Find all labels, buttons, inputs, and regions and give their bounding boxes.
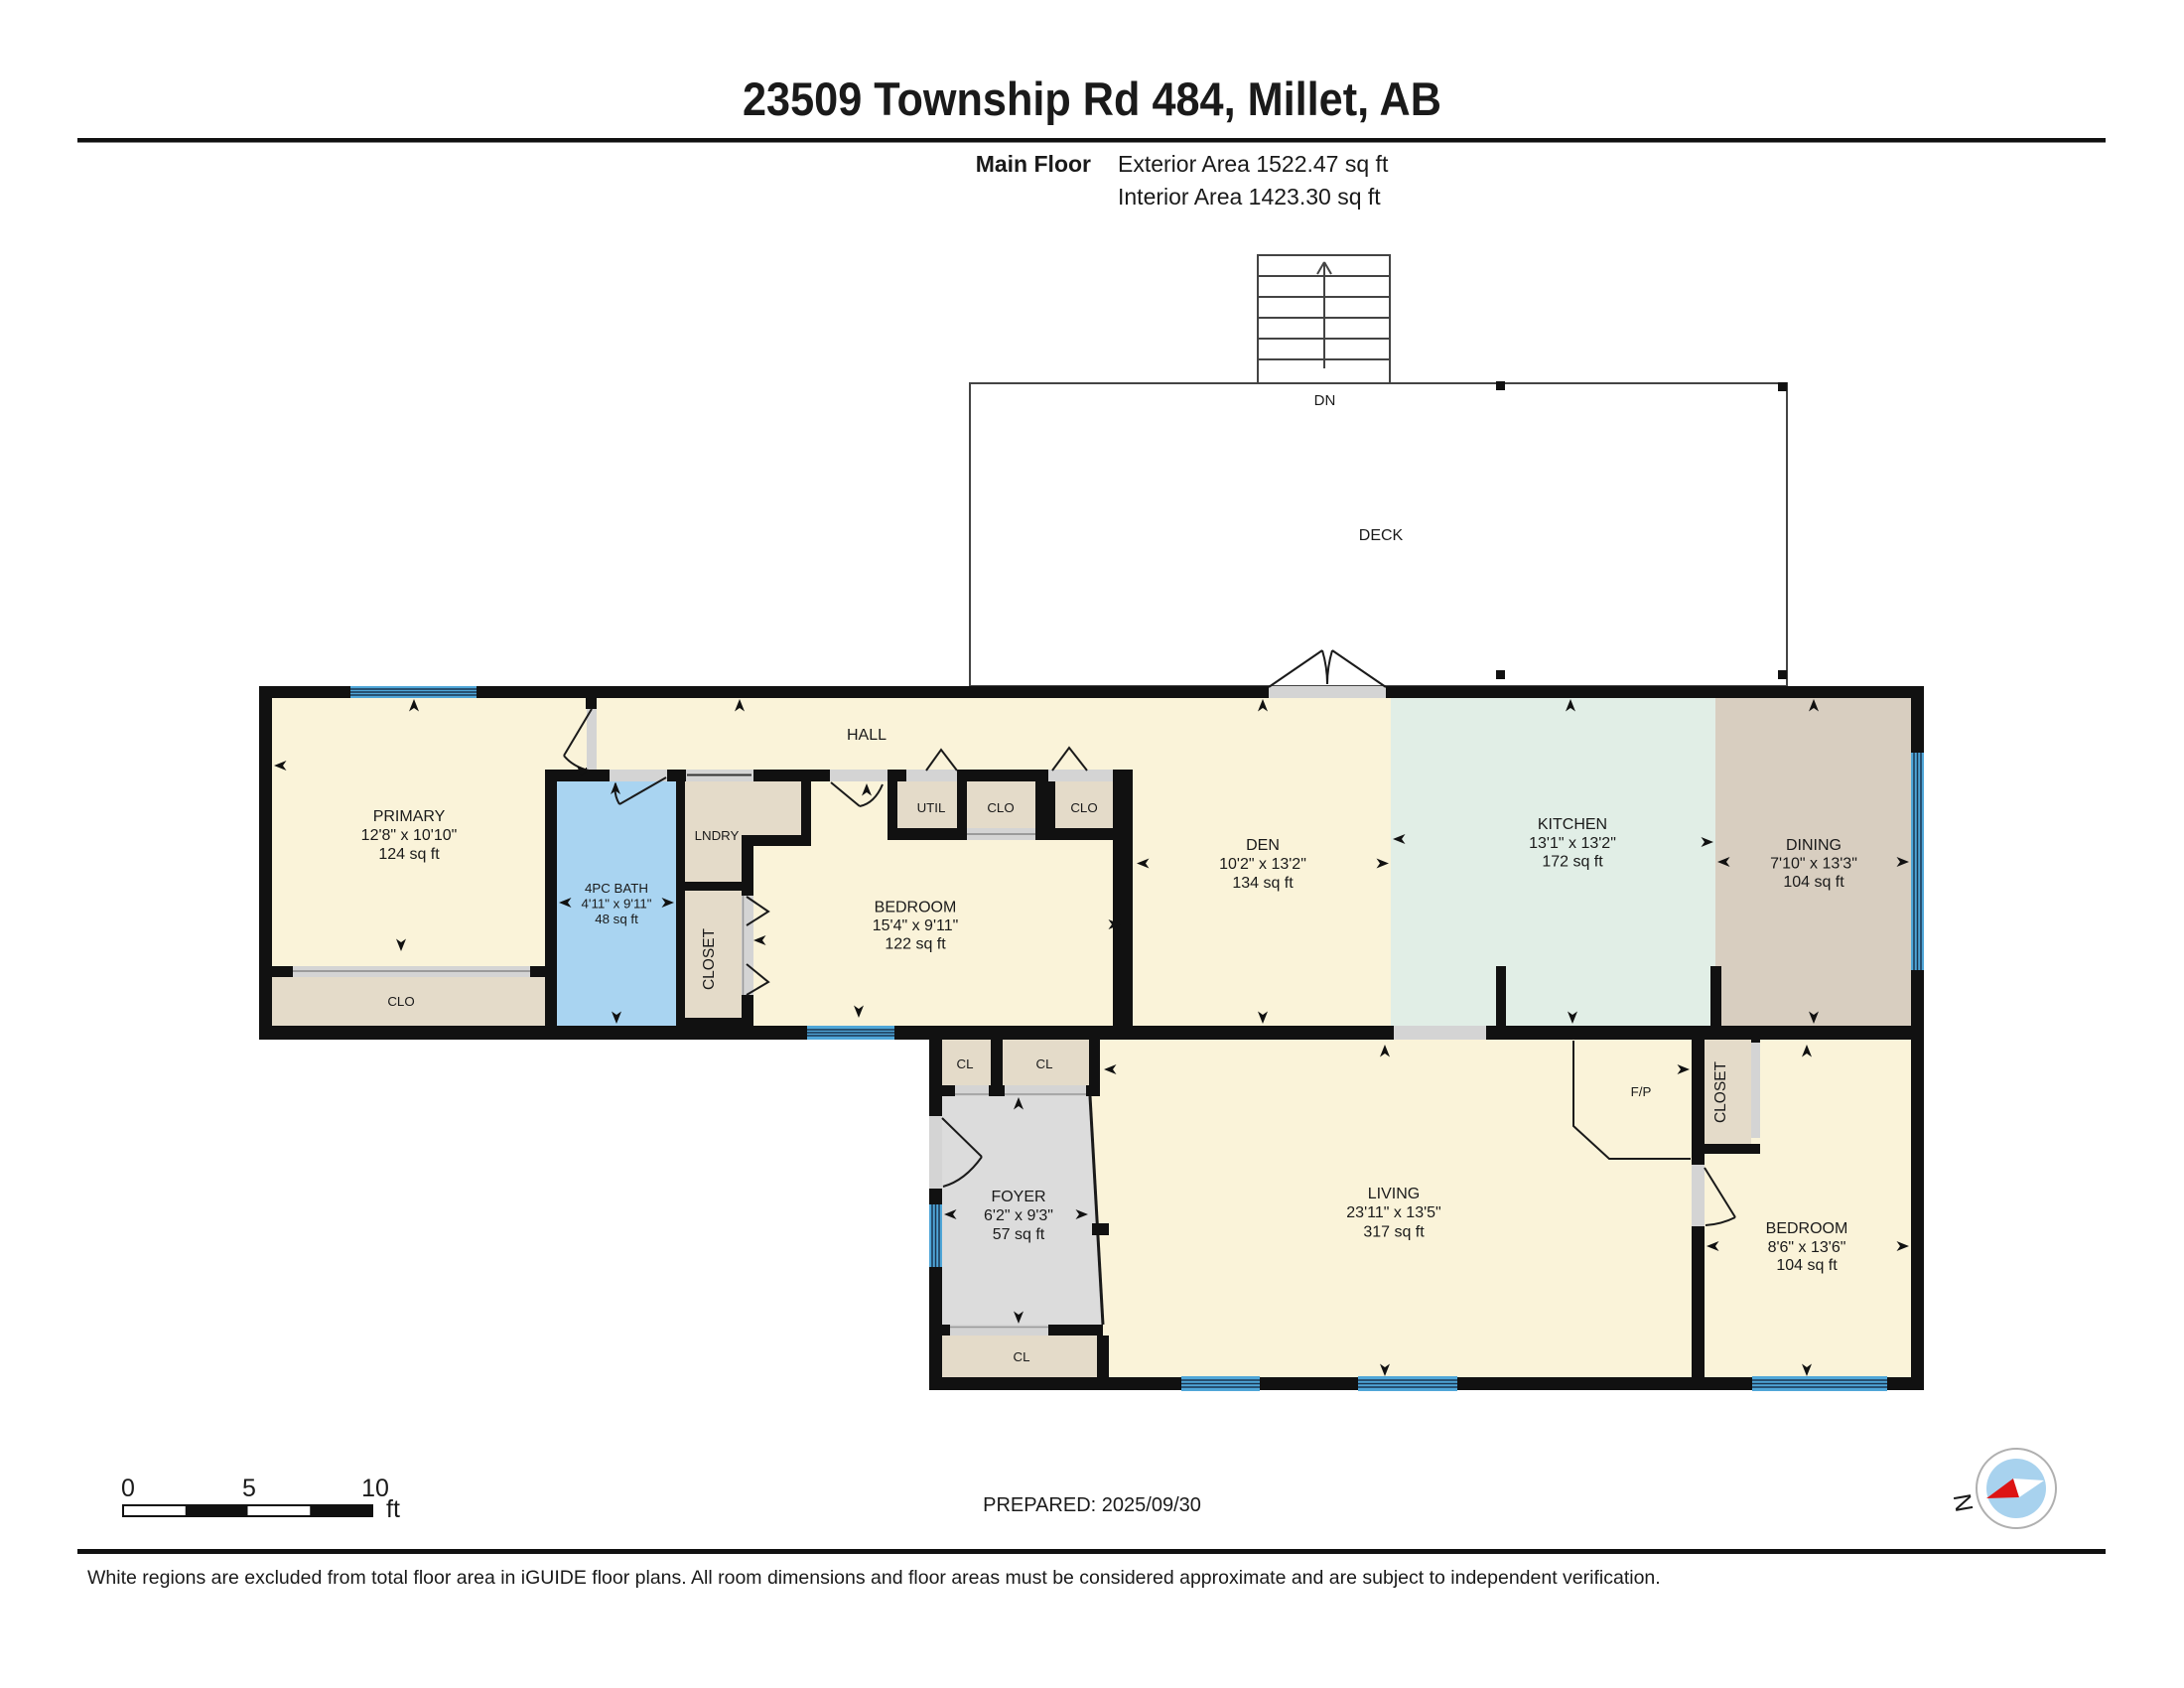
- svg-text:124 sq ft: 124 sq ft: [378, 846, 440, 863]
- svg-text:PRIMARY: PRIMARY: [373, 808, 446, 825]
- svg-text:CL: CL: [957, 1056, 974, 1071]
- svg-text:12'8" x 10'10": 12'8" x 10'10": [361, 827, 458, 844]
- svg-text:6'2" x 9'3": 6'2" x 9'3": [984, 1207, 1053, 1224]
- svg-text:23'11" x 13'5": 23'11" x 13'5": [1346, 1204, 1440, 1221]
- svg-text:FOYER: FOYER: [991, 1189, 1045, 1205]
- svg-text:DINING: DINING: [1786, 837, 1842, 854]
- svg-text:White regions are excluded fro: White regions are excluded from total fl…: [87, 1567, 1661, 1589]
- svg-text:ft: ft: [386, 1495, 400, 1523]
- svg-text:0: 0: [121, 1475, 135, 1502]
- svg-text:13'1" x 13'2": 13'1" x 13'2": [1529, 835, 1616, 852]
- svg-text:CL: CL: [1014, 1349, 1030, 1364]
- svg-text:CLOSET: CLOSET: [701, 927, 718, 990]
- svg-text:317 sq ft: 317 sq ft: [1363, 1224, 1425, 1241]
- svg-text:HALL: HALL: [847, 727, 887, 744]
- svg-text:172 sq ft: 172 sq ft: [1542, 854, 1603, 871]
- svg-text:104 sq ft: 104 sq ft: [1783, 874, 1844, 891]
- svg-text:8'6" x 13'6": 8'6" x 13'6": [1768, 1239, 1846, 1256]
- svg-text:15'4" x 9'11": 15'4" x 9'11": [873, 917, 959, 934]
- svg-text:LIVING: LIVING: [1368, 1186, 1420, 1202]
- svg-text:23509 Township Rd 484, Millet,: 23509 Township Rd 484, Millet, AB: [743, 73, 1441, 126]
- svg-text:57 sq ft: 57 sq ft: [993, 1226, 1045, 1243]
- svg-text:BEDROOM: BEDROOM: [875, 900, 957, 916]
- svg-text:UTIL: UTIL: [917, 800, 946, 815]
- svg-text:10'2" x 13'2": 10'2" x 13'2": [1219, 856, 1306, 873]
- svg-text:122 sq ft: 122 sq ft: [885, 936, 946, 953]
- svg-text:7'10" x 13'3": 7'10" x 13'3": [1770, 856, 1857, 873]
- svg-text:10: 10: [361, 1475, 389, 1502]
- svg-text:Main Floor: Main Floor: [976, 151, 1091, 177]
- svg-text:CLOSET: CLOSET: [1712, 1060, 1729, 1123]
- svg-text:CLO: CLO: [1070, 800, 1097, 815]
- svg-text:BEDROOM: BEDROOM: [1766, 1220, 1848, 1237]
- svg-text:KITCHEN: KITCHEN: [1538, 816, 1607, 833]
- svg-text:F/P: F/P: [1631, 1084, 1652, 1099]
- svg-text:48 sq ft: 48 sq ft: [595, 912, 638, 926]
- svg-text:5: 5: [242, 1475, 256, 1502]
- svg-text:Exterior Area 1522.47 sq ft: Exterior Area 1522.47 sq ft: [1118, 151, 1389, 177]
- svg-text:104 sq ft: 104 sq ft: [1776, 1257, 1838, 1274]
- svg-text:CLO: CLO: [987, 800, 1014, 815]
- svg-text:CLO: CLO: [387, 994, 414, 1009]
- svg-text:DECK: DECK: [1359, 527, 1404, 544]
- svg-text:DEN: DEN: [1246, 837, 1280, 854]
- svg-text:CL: CL: [1036, 1056, 1053, 1071]
- svg-text:4PC BATH: 4PC BATH: [585, 881, 648, 896]
- svg-text:Interior Area 1423.30 sq ft: Interior Area 1423.30 sq ft: [1118, 184, 1381, 210]
- svg-text:134 sq ft: 134 sq ft: [1232, 875, 1294, 892]
- svg-text:4'11" x 9'11": 4'11" x 9'11": [582, 897, 652, 912]
- svg-text:LNDRY: LNDRY: [695, 828, 740, 843]
- svg-text:DN: DN: [1314, 392, 1336, 409]
- svg-text:PREPARED: 2025/09/30: PREPARED: 2025/09/30: [983, 1494, 1201, 1516]
